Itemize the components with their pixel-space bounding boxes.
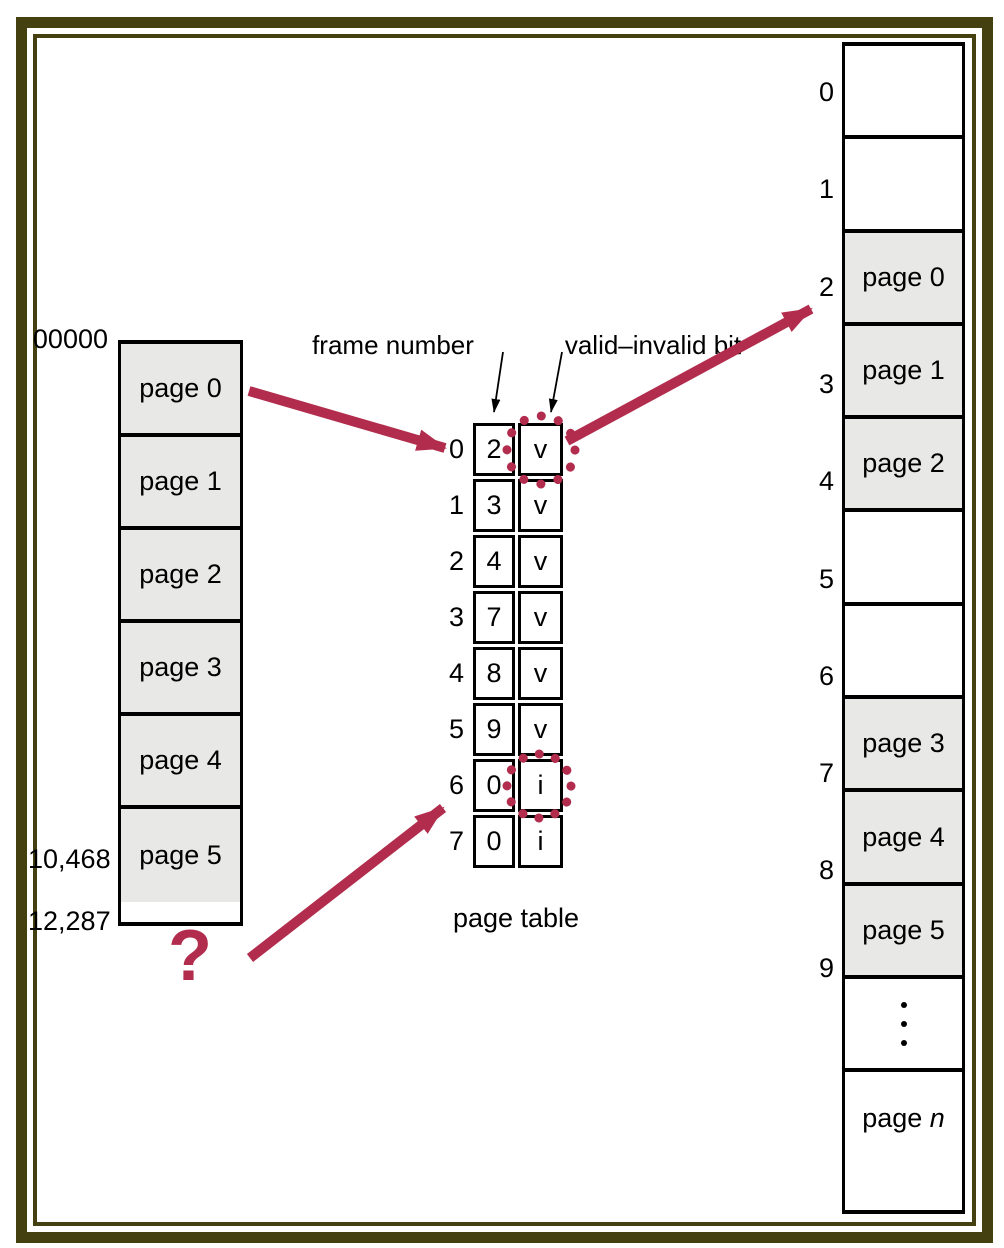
- physical-frame-cell: [845, 606, 962, 699]
- physical-frame-index: 8: [794, 857, 834, 884]
- valid-bit-cell: i: [518, 759, 563, 812]
- physical-frame-cell: page 2: [845, 419, 962, 512]
- logical-page-cell: page 0: [121, 344, 240, 437]
- frame-content: page 0: [862, 262, 945, 293]
- page-table-row: 4 8 v: [430, 647, 563, 700]
- logical-page-cell: page 1: [121, 437, 240, 530]
- logical-page-cell: page 5: [121, 809, 240, 902]
- valid-bit-cell: i: [518, 815, 563, 868]
- physical-frame-cell: [845, 512, 962, 605]
- page-table-row: 6 0 i: [430, 759, 563, 812]
- physical-frame-index: 7: [794, 760, 834, 787]
- page-table: 0 2 v 1 3 v 2 4 v 3 7 v 4 8 v 5 9 v: [430, 423, 570, 868]
- frame-number-cell: 0: [473, 759, 515, 812]
- page-table-row-index: 5: [430, 714, 464, 745]
- physical-frame-cell: page 1: [845, 326, 962, 419]
- valid-bit-cell: v: [518, 703, 563, 756]
- page-table-row-index: 0: [430, 434, 464, 465]
- page-table-row: 7 0 i: [430, 815, 563, 868]
- logical-memory-column: page 0 page 1 page 2 page 3 page 4 page …: [118, 340, 243, 926]
- physical-frame-index: 4: [794, 468, 834, 495]
- logical-page-cell: page 3: [121, 623, 240, 716]
- address-label-top: 00000: [28, 326, 108, 353]
- physical-frame-cell: [845, 139, 962, 232]
- physical-frame-index: 6: [794, 663, 834, 690]
- physical-frame-index: 9: [794, 955, 834, 982]
- physical-frame-index: 2: [794, 274, 834, 301]
- logical-page-label: page 4: [139, 745, 222, 776]
- frame-content: page 1: [862, 355, 945, 386]
- physical-frame-cell: [845, 46, 962, 139]
- frame-number-label: frame number: [283, 330, 503, 361]
- frame-number-cell: 7: [473, 591, 515, 644]
- page-table-row: 0 2 v: [430, 423, 563, 476]
- figure-canvas: 00000 10,468 12,287 page 0 page 1 page 2…: [0, 0, 1004, 1248]
- logical-page-cell: page 2: [121, 530, 240, 623]
- valid-bit-cell: v: [518, 423, 563, 476]
- physical-frame-cell: [845, 979, 962, 1072]
- page-table-caption: page table: [416, 903, 616, 934]
- frame-number-cell: 0: [473, 815, 515, 868]
- physical-frame-cell: page n: [845, 1072, 962, 1165]
- frame-content: page 5: [862, 915, 945, 946]
- page-table-row-index: 7: [430, 826, 464, 857]
- vertical-ellipsis-icon: [901, 1002, 907, 1046]
- page-table-row-index: 2: [430, 546, 464, 577]
- page-table-row: 3 7 v: [430, 591, 563, 644]
- page-table-row-index: 6: [430, 770, 464, 801]
- frame-number-cell: 3: [473, 479, 515, 532]
- page-table-row-index: 3: [430, 602, 464, 633]
- valid-bit-cell: v: [518, 647, 563, 700]
- frame-number-cell: 9: [473, 703, 515, 756]
- valid-bit-cell: v: [518, 591, 563, 644]
- page-table-row: 2 4 v: [430, 535, 563, 588]
- logical-page-label: page 1: [139, 466, 222, 497]
- physical-memory-column: page 0 page 1 page 2 page 3 page 4 page …: [842, 42, 965, 1214]
- frame-content: page 4: [862, 822, 945, 853]
- physical-frame-cell: page 5: [845, 886, 962, 979]
- page-table-row: 1 3 v: [430, 479, 563, 532]
- valid-bit-cell: v: [518, 479, 563, 532]
- address-label-bottom: 12,287: [28, 908, 108, 935]
- physical-frame-index: 1: [794, 176, 834, 203]
- frame-number-cell: 2: [473, 423, 515, 476]
- physical-frame-cell: page 0: [845, 233, 962, 326]
- question-mark: ?: [155, 916, 225, 1006]
- valid-bit-cell: v: [518, 535, 563, 588]
- physical-frame-cell: page 4: [845, 792, 962, 885]
- logical-page-cell: page 4: [121, 716, 240, 809]
- logical-page-label: page 2: [139, 559, 222, 590]
- page-table-row-index: 4: [430, 658, 464, 689]
- frame-content: page 2: [862, 448, 945, 479]
- logical-page-label: page 5: [139, 840, 222, 871]
- valid-invalid-bit-label: valid–invalid bit: [543, 330, 763, 361]
- physical-frame-index: 5: [794, 566, 834, 593]
- logical-page-label: page 0: [139, 373, 222, 404]
- page-table-row-index: 1: [430, 490, 464, 521]
- frame-content: page n: [862, 1103, 945, 1134]
- logical-page-label: page 3: [139, 652, 222, 683]
- frame-content: page 3: [862, 728, 945, 759]
- page-table-row: 5 9 v: [430, 703, 563, 756]
- physical-frame-index: 3: [794, 371, 834, 398]
- frame-number-cell: 8: [473, 647, 515, 700]
- address-label-mid: 10,468: [28, 846, 108, 873]
- physical-frame-cell: page 3: [845, 699, 962, 792]
- frame-number-cell: 4: [473, 535, 515, 588]
- physical-frame-index: 0: [794, 79, 834, 106]
